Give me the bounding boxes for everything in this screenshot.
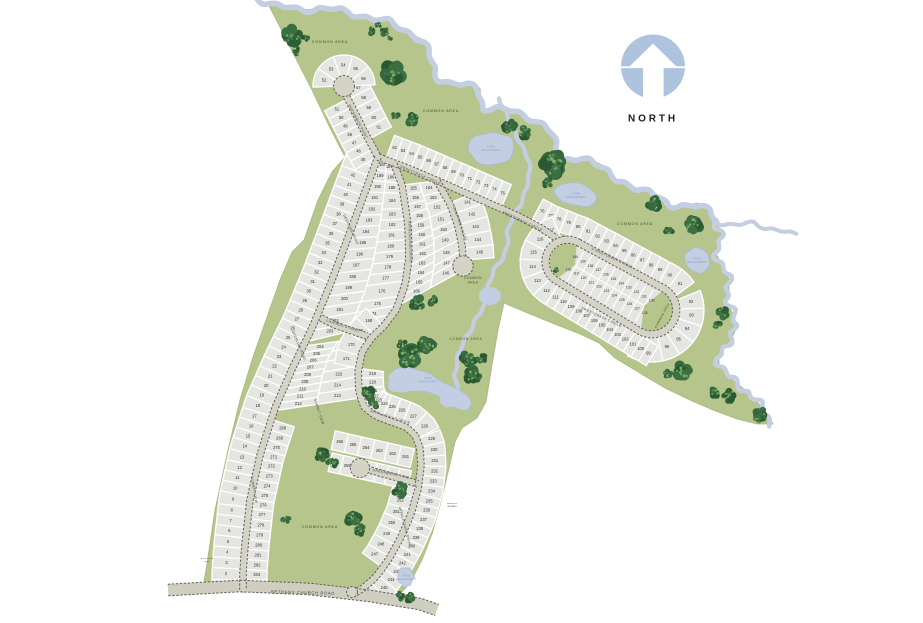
svg-text:39: 39: [340, 202, 345, 207]
svg-text:281: 281: [254, 552, 262, 557]
svg-text:127: 127: [634, 307, 640, 311]
svg-text:128: 128: [642, 311, 648, 315]
svg-text:COMMON AREA: COMMON AREA: [449, 337, 482, 341]
svg-text:COMMON: COMMON: [464, 276, 482, 280]
svg-text:193: 193: [366, 218, 374, 223]
svg-text:10: 10: [233, 485, 238, 490]
svg-text:106: 106: [591, 318, 599, 323]
svg-text:12: 12: [237, 465, 242, 470]
svg-text:189: 189: [377, 173, 385, 178]
svg-text:100: 100: [637, 346, 645, 351]
svg-text:45: 45: [361, 157, 366, 162]
svg-text:280: 280: [255, 543, 263, 548]
svg-text:59: 59: [367, 105, 372, 110]
svg-text:16: 16: [249, 423, 254, 428]
svg-text:133: 133: [626, 286, 632, 290]
svg-text:242: 242: [399, 561, 407, 566]
svg-text:182: 182: [389, 222, 397, 227]
svg-text:263: 263: [376, 448, 384, 453]
svg-text:265: 265: [350, 442, 358, 447]
svg-text:62: 62: [392, 145, 397, 150]
svg-text:87: 87: [640, 258, 645, 263]
svg-text:121: 121: [588, 280, 594, 284]
svg-text:181: 181: [388, 233, 396, 238]
svg-text:131: 131: [641, 294, 647, 298]
svg-text:47: 47: [352, 140, 357, 145]
svg-text:139: 139: [580, 260, 586, 264]
svg-text:278: 278: [257, 522, 265, 527]
svg-text:196: 196: [356, 252, 364, 257]
svg-text:NORTH: NORTH: [628, 114, 678, 125]
svg-text:195: 195: [359, 240, 367, 245]
svg-text:171: 171: [343, 356, 351, 361]
svg-text:88: 88: [649, 262, 654, 267]
svg-text:149: 149: [442, 237, 450, 242]
svg-text:86: 86: [631, 253, 636, 258]
svg-text:177: 177: [382, 275, 390, 280]
svg-text:229: 229: [428, 436, 436, 441]
svg-text:COMMON AREA: COMMON AREA: [302, 525, 338, 529]
svg-text:140: 140: [572, 255, 578, 259]
svg-text:SETBACK: SETBACK: [447, 505, 457, 508]
svg-text:64: 64: [409, 151, 414, 156]
svg-text:101: 101: [629, 341, 637, 346]
svg-text:176: 176: [379, 288, 387, 293]
svg-text:134: 134: [618, 281, 624, 285]
svg-text:27: 27: [295, 317, 300, 322]
svg-text:185: 185: [388, 185, 396, 190]
svg-text:266: 266: [336, 439, 344, 444]
svg-text:109: 109: [568, 304, 576, 309]
svg-text:235: 235: [426, 498, 434, 503]
svg-text:30: 30: [307, 288, 312, 293]
svg-text:130: 130: [649, 299, 655, 303]
svg-text:192: 192: [368, 206, 376, 211]
svg-text:138: 138: [588, 264, 594, 268]
svg-text:194: 194: [363, 229, 371, 234]
svg-text:162: 162: [419, 251, 427, 256]
svg-text:230: 230: [431, 447, 439, 452]
svg-text:105: 105: [599, 323, 607, 328]
svg-text:220: 220: [369, 380, 377, 385]
svg-text:125: 125: [619, 298, 625, 302]
svg-text:103: 103: [614, 332, 622, 337]
svg-text:119: 119: [573, 272, 579, 276]
svg-text:21: 21: [268, 373, 273, 378]
svg-text:215: 215: [335, 372, 343, 377]
svg-text:213: 213: [334, 393, 342, 398]
svg-text:248: 248: [377, 542, 385, 547]
svg-text:226: 226: [399, 408, 407, 413]
svg-text:15: 15: [246, 433, 251, 438]
svg-text:41: 41: [347, 182, 352, 187]
svg-text:71: 71: [468, 176, 473, 181]
svg-text:90: 90: [668, 273, 673, 278]
svg-text:126: 126: [627, 302, 633, 306]
svg-text:20: 20: [264, 383, 269, 388]
svg-text:282: 282: [254, 562, 262, 567]
svg-text:37: 37: [333, 221, 338, 226]
svg-text:79: 79: [566, 220, 571, 225]
svg-text:49: 49: [343, 123, 348, 128]
svg-text:225: 225: [389, 404, 397, 409]
svg-text:145: 145: [476, 250, 484, 255]
svg-text:MANAGEMENT: MANAGEMENT: [418, 380, 438, 384]
svg-text:261: 261: [402, 454, 410, 459]
svg-text:160: 160: [418, 232, 426, 237]
svg-text:60 SF: 60 SF: [204, 561, 210, 563]
svg-text:199: 199: [345, 285, 353, 290]
svg-text:241: 241: [404, 552, 412, 557]
svg-text:29: 29: [303, 298, 308, 303]
svg-text:186: 186: [387, 174, 395, 179]
svg-text:234: 234: [428, 488, 436, 493]
svg-text:179: 179: [386, 254, 394, 259]
svg-text:123: 123: [604, 289, 610, 293]
svg-text:33: 33: [318, 260, 323, 265]
svg-text:152: 152: [434, 205, 442, 210]
svg-text:89: 89: [658, 267, 663, 272]
svg-text:115: 115: [530, 250, 537, 255]
svg-text:73: 73: [484, 183, 489, 188]
svg-text:MANAGEMENT: MANAGEMENT: [481, 148, 501, 152]
svg-text:110: 110: [560, 299, 567, 304]
svg-text:32: 32: [314, 270, 319, 275]
svg-text:158: 158: [416, 213, 424, 218]
svg-text:COMMON AREA: COMMON AREA: [423, 109, 459, 113]
svg-text:141: 141: [464, 200, 472, 205]
svg-text:MANAGEMENT: MANAGEMENT: [396, 577, 416, 581]
svg-text:264: 264: [363, 445, 371, 450]
svg-text:146: 146: [442, 271, 450, 276]
svg-text:66: 66: [426, 158, 431, 163]
svg-text:25: 25: [286, 335, 291, 340]
svg-text:201: 201: [336, 307, 344, 312]
svg-text:MANAGEMENT: MANAGEMENT: [687, 260, 707, 264]
svg-text:164: 164: [418, 270, 426, 275]
svg-text:147: 147: [443, 260, 451, 265]
svg-text:124: 124: [611, 293, 617, 297]
svg-text:99: 99: [646, 351, 651, 356]
svg-text:245: 245: [381, 585, 389, 590]
svg-text:11: 11: [235, 475, 240, 480]
svg-text:31: 31: [310, 279, 315, 284]
svg-text:163: 163: [419, 261, 427, 266]
svg-text:144: 144: [475, 237, 483, 242]
svg-text:238: 238: [416, 526, 424, 531]
svg-text:206: 206: [310, 358, 318, 363]
svg-text:159: 159: [417, 223, 425, 228]
svg-text:156: 156: [412, 195, 420, 200]
svg-text:212: 212: [295, 401, 303, 406]
svg-text:91: 91: [678, 281, 683, 286]
svg-text:271: 271: [270, 454, 278, 459]
svg-text:82: 82: [595, 234, 600, 239]
svg-text:168: 168: [365, 318, 373, 323]
svg-text:183: 183: [389, 211, 397, 216]
svg-text:184: 184: [389, 198, 397, 203]
svg-text:81: 81: [586, 229, 591, 234]
svg-text:268: 268: [279, 426, 287, 431]
svg-text:23: 23: [277, 354, 282, 359]
svg-text:276: 276: [260, 503, 268, 508]
svg-text:200: 200: [341, 296, 349, 301]
svg-text:93: 93: [689, 313, 694, 318]
svg-text:38: 38: [336, 211, 341, 216]
svg-text:232: 232: [431, 469, 439, 474]
svg-text:249: 249: [383, 531, 391, 536]
svg-text:18: 18: [256, 403, 261, 408]
svg-text:170: 170: [348, 342, 356, 347]
svg-text:157: 157: [414, 204, 422, 209]
svg-text:MIN BLDG: MIN BLDG: [447, 503, 457, 505]
svg-text:274: 274: [264, 484, 272, 489]
svg-text:142: 142: [468, 211, 476, 216]
svg-text:275: 275: [261, 493, 269, 498]
svg-text:85: 85: [622, 248, 627, 253]
svg-text:190: 190: [374, 184, 382, 189]
svg-text:22: 22: [272, 364, 277, 369]
svg-text:50: 50: [339, 115, 344, 120]
svg-text:51: 51: [335, 107, 340, 112]
svg-text:227: 227: [410, 414, 418, 419]
svg-text:112: 112: [543, 288, 550, 293]
svg-text:231: 231: [431, 458, 439, 463]
svg-text:92: 92: [689, 299, 694, 304]
svg-text:132: 132: [634, 290, 640, 294]
svg-text:94: 94: [685, 326, 690, 331]
svg-text:102: 102: [622, 337, 630, 342]
svg-text:114: 114: [529, 264, 536, 269]
svg-text:161: 161: [419, 242, 427, 247]
svg-text:46: 46: [356, 149, 361, 154]
svg-text:104: 104: [606, 327, 614, 332]
svg-text:180: 180: [387, 243, 395, 248]
svg-text:210: 210: [299, 386, 307, 391]
svg-text:68: 68: [443, 165, 448, 170]
svg-text:228: 228: [421, 424, 429, 429]
svg-text:58: 58: [361, 95, 366, 100]
svg-text:165: 165: [416, 280, 424, 285]
svg-text:24: 24: [281, 344, 286, 349]
svg-text:279: 279: [256, 533, 264, 538]
svg-text:72: 72: [476, 180, 481, 185]
svg-text:76: 76: [540, 209, 545, 214]
svg-text:48: 48: [347, 132, 352, 137]
svg-text:60: 60: [372, 115, 377, 120]
svg-text:19: 19: [260, 393, 265, 398]
svg-text:219: 219: [369, 371, 377, 376]
svg-text:175: 175: [374, 301, 382, 306]
svg-text:191: 191: [371, 195, 379, 200]
svg-text:204: 204: [317, 344, 325, 349]
svg-text:148: 148: [443, 250, 451, 255]
svg-text:250: 250: [388, 520, 396, 525]
svg-text:13: 13: [240, 455, 245, 460]
svg-text:239: 239: [413, 535, 421, 540]
svg-text:203: 203: [326, 329, 334, 334]
svg-text:67: 67: [435, 162, 440, 167]
svg-text:96: 96: [665, 344, 670, 349]
svg-text:14: 14: [243, 444, 248, 449]
svg-text:205: 205: [313, 351, 321, 356]
svg-text:55: 55: [353, 66, 358, 71]
svg-text:273: 273: [266, 474, 274, 479]
svg-text:95: 95: [676, 337, 681, 342]
svg-text:269: 269: [276, 435, 284, 440]
svg-text:135: 135: [611, 277, 617, 281]
svg-text:ENTRY SIGN: ENTRY SIGN: [201, 558, 214, 560]
svg-text:28: 28: [299, 308, 304, 313]
svg-text:197: 197: [353, 263, 361, 268]
svg-text:208: 208: [304, 372, 312, 377]
svg-text:244: 244: [388, 577, 396, 582]
svg-text:75: 75: [500, 190, 505, 195]
svg-text:53: 53: [329, 67, 334, 72]
svg-text:236: 236: [423, 507, 431, 512]
svg-text:270: 270: [273, 445, 281, 450]
svg-text:56: 56: [361, 76, 366, 81]
svg-text:198: 198: [349, 274, 357, 279]
svg-text:262: 262: [389, 451, 397, 456]
svg-text:AREA: AREA: [468, 281, 479, 285]
svg-text:65: 65: [418, 155, 423, 160]
svg-text:233: 233: [430, 478, 438, 483]
svg-text:COMMON AREA: COMMON AREA: [617, 222, 653, 226]
svg-text:150: 150: [440, 227, 448, 232]
svg-text:118: 118: [566, 267, 572, 271]
svg-text:83: 83: [604, 238, 609, 243]
svg-text:116: 116: [537, 237, 544, 242]
svg-text:283: 283: [253, 572, 261, 577]
svg-text:178: 178: [384, 265, 392, 270]
svg-text:42: 42: [351, 173, 356, 178]
svg-text:153: 153: [430, 195, 438, 200]
svg-text:120: 120: [581, 276, 587, 280]
svg-text:237: 237: [420, 517, 428, 522]
svg-text:61: 61: [377, 125, 382, 130]
svg-text:70: 70: [459, 173, 464, 178]
svg-text:111: 111: [552, 294, 559, 299]
svg-text:40: 40: [343, 192, 348, 197]
svg-text:36: 36: [329, 231, 334, 236]
svg-text:272: 272: [268, 464, 276, 469]
svg-text:137: 137: [595, 268, 601, 272]
svg-text:211: 211: [297, 394, 304, 399]
svg-text:74: 74: [492, 187, 497, 192]
svg-text:BETHANY CHURCH ROAD: BETHANY CHURCH ROAD: [271, 589, 335, 596]
svg-text:34: 34: [322, 250, 327, 255]
svg-text:155: 155: [410, 186, 418, 191]
svg-text:209: 209: [301, 379, 309, 384]
svg-text:207: 207: [307, 365, 315, 370]
svg-text:84: 84: [613, 243, 618, 248]
svg-text:54: 54: [341, 62, 346, 67]
svg-text:224: 224: [381, 401, 389, 406]
svg-text:113: 113: [534, 278, 541, 283]
svg-text:122: 122: [596, 285, 602, 289]
svg-text:143: 143: [472, 224, 480, 229]
svg-text:166: 166: [413, 289, 421, 294]
svg-text:247: 247: [371, 552, 379, 557]
svg-text:35: 35: [325, 241, 330, 246]
svg-text:63: 63: [401, 148, 406, 153]
svg-text:17: 17: [252, 414, 257, 419]
svg-text:214: 214: [334, 382, 342, 387]
svg-text:136: 136: [603, 273, 609, 277]
svg-text:52: 52: [322, 77, 327, 82]
svg-text:151: 151: [437, 217, 445, 222]
svg-text:154: 154: [426, 185, 434, 190]
svg-text:MANAGEMENT: MANAGEMENT: [566, 195, 586, 199]
svg-text:277: 277: [259, 512, 267, 517]
svg-text:80: 80: [576, 224, 581, 229]
svg-text:COMMON AREA: COMMON AREA: [312, 40, 348, 44]
svg-text:78: 78: [557, 217, 562, 222]
svg-text:107: 107: [583, 313, 591, 318]
svg-text:69: 69: [451, 169, 456, 174]
